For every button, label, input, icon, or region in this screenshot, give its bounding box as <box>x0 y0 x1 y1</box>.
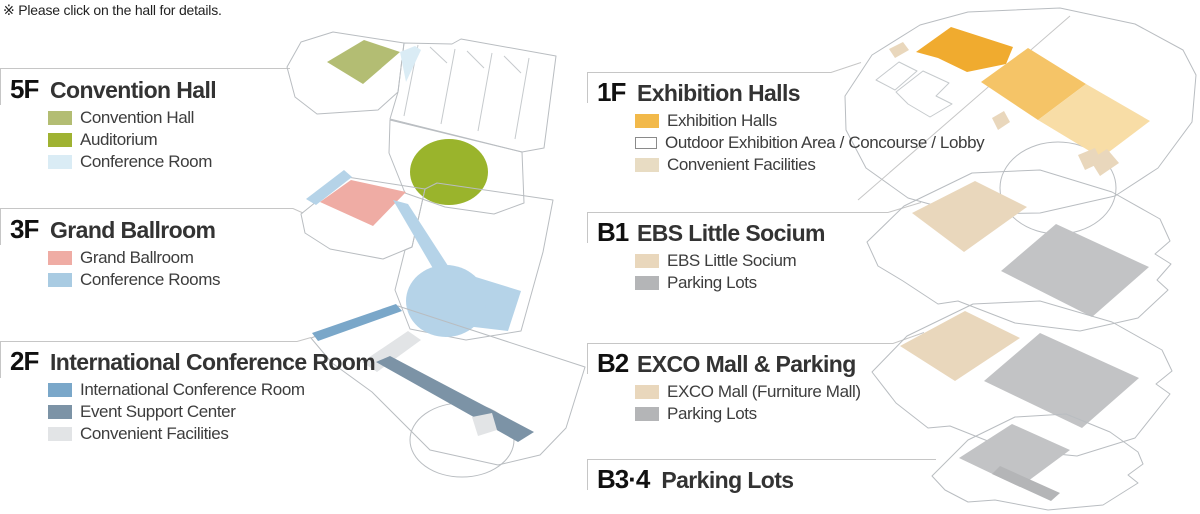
plan-b1-ebs-little-socium[interactable] <box>912 181 1027 252</box>
section-5f-head: 5F Convention Hall <box>10 74 216 104</box>
section-title-2f: International Conference Room <box>50 347 375 377</box>
legend-label: Parking Lots <box>667 404 757 424</box>
plan-b1-outline <box>867 170 1171 331</box>
floorplan-b34[interactable] <box>932 414 1143 510</box>
legend-item: Outdoor Exhibition Area / Concourse / Lo… <box>635 132 984 154</box>
legend-b1: EBS Little Socium Parking Lots <box>635 250 825 294</box>
legend-item: Conference Room <box>48 151 216 173</box>
legend-swatch <box>635 254 659 268</box>
plan-5f-convention-hall[interactable] <box>327 40 400 84</box>
section-2f: 2F International Conference Room Interna… <box>10 346 375 445</box>
section-title-b1: EBS Little Socium <box>637 218 825 248</box>
legend-swatch <box>48 405 72 419</box>
legend-swatch <box>48 155 72 169</box>
legend-swatch <box>48 133 72 147</box>
floor-label-b34: B3·4 <box>597 464 649 494</box>
section-b2-head: B2 EXCO Mall & Parking <box>597 348 861 378</box>
legend-label: Grand Ballroom <box>80 248 193 268</box>
section-2f-head: 2F International Conference Room <box>10 346 375 376</box>
section-title-b34: Parking Lots <box>661 465 793 495</box>
legend-swatch <box>635 158 659 172</box>
legend-label: Exhibition Halls <box>667 111 777 131</box>
plan-3f-round-hall[interactable] <box>406 265 486 337</box>
legend-swatch-outdoor <box>635 137 657 149</box>
legend-item: EXCO Mall (Furniture Mall) <box>635 381 861 403</box>
plan-b1-parking[interactable] <box>1001 224 1149 317</box>
legend-3f: Grand Ballroom Conference Rooms <box>48 247 220 291</box>
legend-label: Auditorium <box>80 130 157 150</box>
section-b34-head: B3·4 Parking Lots <box>597 464 793 494</box>
section-b1-head: B1 EBS Little Socium <box>597 217 825 247</box>
legend-swatch <box>635 407 659 421</box>
legend-item: Convenient Facilities <box>635 154 984 176</box>
click-note: ※ Please click on the hall for details. <box>3 2 222 19</box>
legend-item: Parking Lots <box>635 403 861 425</box>
floor-label-b2: B2 <box>597 348 637 378</box>
section-b1: B1 EBS Little Socium EBS Little Socium P… <box>597 217 825 294</box>
plan-2f-international-conference-room[interactable] <box>312 304 402 341</box>
legend-label: Outdoor Exhibition Area / Concourse / Lo… <box>665 133 984 153</box>
legend-b2: EXCO Mall (Furniture Mall) Parking Lots <box>635 381 861 425</box>
legend-item: Convention Hall <box>48 107 216 129</box>
legend-item: International Conference Room <box>48 379 375 401</box>
legend-swatch <box>48 383 72 397</box>
legend-label: Conference Rooms <box>80 270 220 290</box>
plan-b2-parking[interactable] <box>984 333 1139 428</box>
legend-label: Event Support Center <box>80 402 235 422</box>
legend-item: Parking Lots <box>635 272 825 294</box>
legend-5f: Convention Hall Auditorium Conference Ro… <box>48 107 216 173</box>
plan-1f-facility-1[interactable] <box>889 42 909 58</box>
section-title-5f: Convention Hall <box>50 75 216 105</box>
section-title-b2: EXCO Mall & Parking <box>637 349 856 379</box>
legend-swatch <box>635 114 659 128</box>
legend-item: Event Support Center <box>48 401 375 423</box>
section-b2: B2 EXCO Mall & Parking EXCO Mall (Furnit… <box>597 348 861 425</box>
legend-1f: Exhibition Halls Outdoor Exhibition Area… <box>635 110 984 176</box>
legend-item: Auditorium <box>48 129 216 151</box>
legend-label: Convention Hall <box>80 108 194 128</box>
legend-label: Conference Room <box>80 152 212 172</box>
legend-2f: International Conference Room Event Supp… <box>48 379 375 445</box>
plan-2f-event-support-center[interactable] <box>376 356 534 442</box>
section-3f-head: 3F Grand Ballroom <box>10 214 220 244</box>
legend-item: Exhibition Halls <box>635 110 984 132</box>
legend-swatch <box>48 251 72 265</box>
legend-item: Grand Ballroom <box>48 247 220 269</box>
legend-swatch <box>635 385 659 399</box>
section-1f-head: 1F Exhibition Halls <box>597 77 984 107</box>
plan-5f-auditorium[interactable] <box>410 139 488 205</box>
floor-label-b1: B1 <box>597 217 637 247</box>
section-5f: 5F Convention Hall Convention Hall Audit… <box>10 74 216 173</box>
floor-guide-page: ※ Please click on the hall for details. … <box>0 0 1200 514</box>
legend-item: Convenient Facilities <box>48 423 375 445</box>
legend-swatch <box>48 427 72 441</box>
floor-label-1f: 1F <box>597 77 637 107</box>
legend-swatch <box>635 276 659 290</box>
legend-item: EBS Little Socium <box>635 250 825 272</box>
plan-1f-facility-2[interactable] <box>992 111 1010 130</box>
plan-5f-conference-room[interactable] <box>400 46 421 82</box>
floor-label-3f: 3F <box>10 214 50 244</box>
floor-label-5f: 5F <box>10 74 50 104</box>
legend-label: EBS Little Socium <box>667 251 796 271</box>
section-title-3f: Grand Ballroom <box>50 215 215 245</box>
legend-label: International Conference Room <box>80 380 305 400</box>
section-b34: B3·4 Parking Lots <box>597 464 793 494</box>
legend-label: EXCO Mall (Furniture Mall) <box>667 382 861 402</box>
legend-label: Convenient Facilities <box>80 424 228 444</box>
plan-1f-exhibition-hall-west[interactable] <box>916 27 1013 72</box>
floorplan-b1[interactable] <box>867 170 1171 331</box>
legend-label: Parking Lots <box>667 273 757 293</box>
section-1f: 1F Exhibition Halls Exhibition Halls Out… <box>597 77 984 176</box>
legend-swatch <box>48 111 72 125</box>
legend-swatch <box>48 273 72 287</box>
section-3f: 3F Grand Ballroom Grand Ballroom Confere… <box>10 214 220 291</box>
floor-label-2f: 2F <box>10 346 50 376</box>
section-title-1f: Exhibition Halls <box>637 78 800 108</box>
plan-5f-roof-lines <box>404 45 529 139</box>
legend-label: Convenient Facilities <box>667 155 815 175</box>
legend-item: Conference Rooms <box>48 269 220 291</box>
